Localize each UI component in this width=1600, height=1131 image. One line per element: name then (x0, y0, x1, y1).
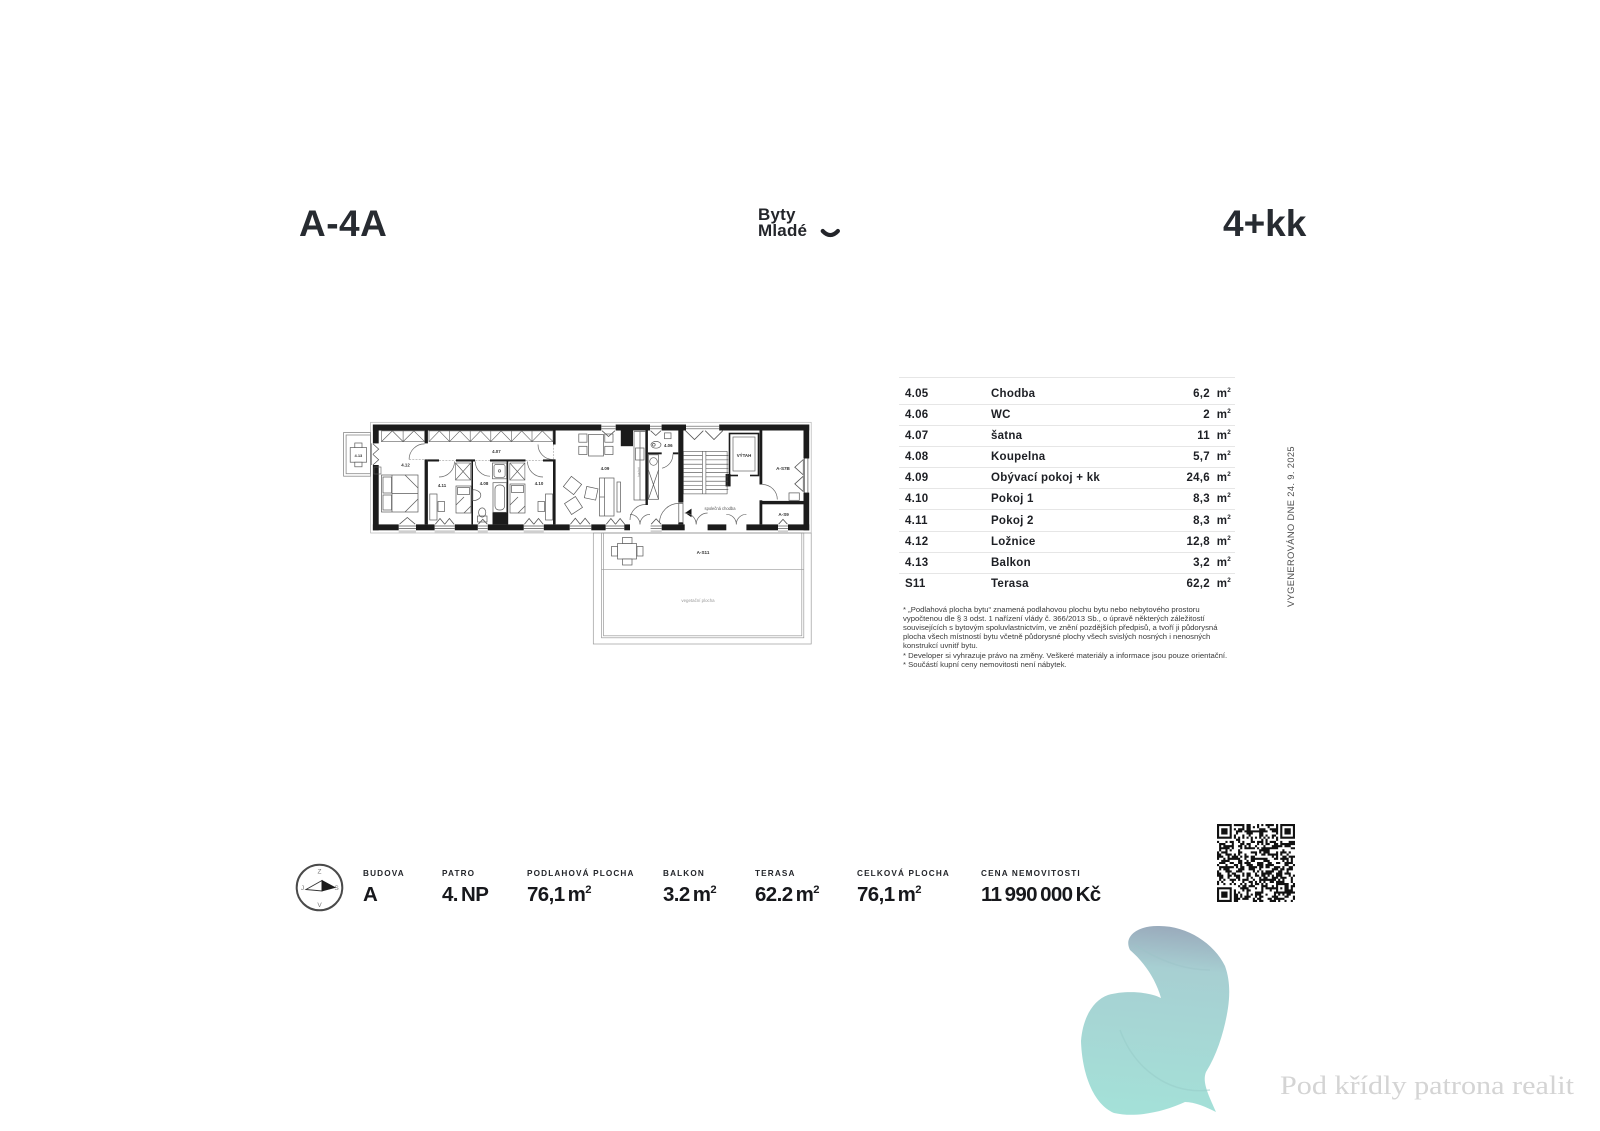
svg-text:společná chodba: společná chodba (705, 506, 737, 511)
svg-text:VÝTAH: VÝTAH (737, 453, 752, 458)
svg-text:4.12: 4.12 (401, 463, 410, 468)
svg-text:4.13: 4.13 (355, 453, 364, 458)
svg-text:V: V (317, 902, 322, 909)
svg-text:A-S7B: A-S7B (776, 466, 790, 471)
svg-text:J: J (301, 885, 304, 892)
svg-text:S: S (334, 885, 339, 892)
svg-text:4.06: 4.06 (664, 443, 673, 448)
svg-text:vegetační plocha: vegetační plocha (681, 598, 715, 603)
svg-text:4.07: 4.07 (492, 449, 501, 454)
svg-text:4.11: 4.11 (438, 483, 447, 488)
svg-text:kuchyň: kuchyň (637, 467, 641, 477)
svg-text:A-S11: A-S11 (697, 550, 710, 555)
svg-text:A-S9: A-S9 (778, 512, 789, 517)
svg-text:4.08: 4.08 (480, 481, 489, 486)
svg-text:4.10: 4.10 (535, 481, 544, 486)
svg-text:Z: Z (318, 869, 322, 876)
svg-text:4.09: 4.09 (601, 466, 610, 471)
